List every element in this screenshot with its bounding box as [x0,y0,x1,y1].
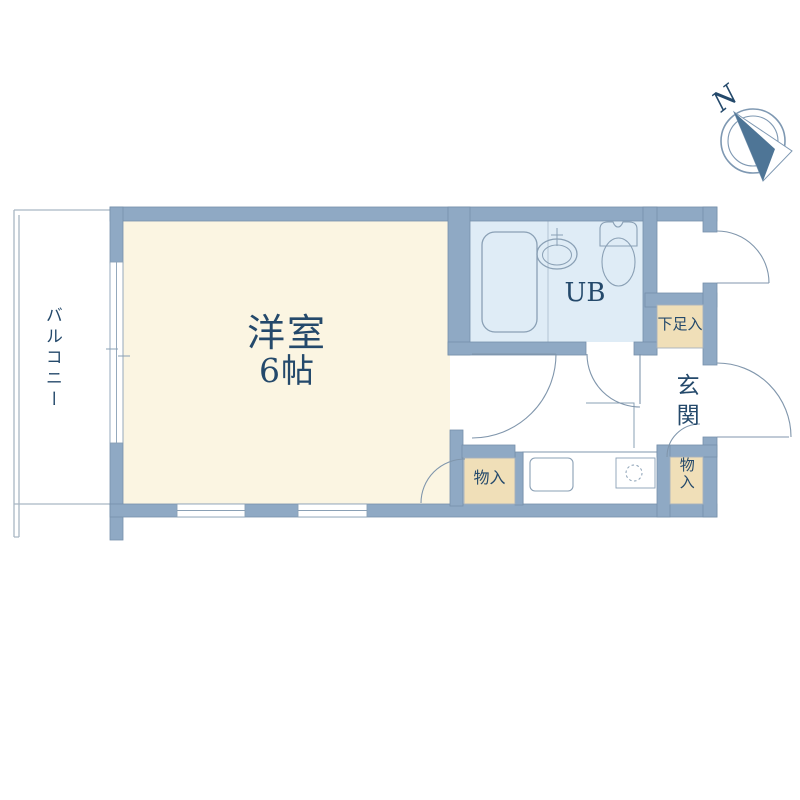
wall-segment [448,342,586,355]
wall-segment [110,207,717,221]
label-balcony: バルコニー [42,306,60,411]
floorplan-page: 洋室 6帖 バルコニー UB 下足入 玄関 物入 物入 N [0,0,800,800]
label-shoe-cabinet: 下足入 [652,317,708,333]
label-entrance: 玄関 [673,373,697,433]
label-storage-right: 物入 [678,457,694,491]
label-storage-left: 物入 [462,470,517,487]
bathroom-door-arc [587,354,640,407]
utility-closet-door-arc [717,231,769,283]
kitchen-area [523,452,658,505]
wall-segment [634,342,657,355]
balcony-outline [14,210,110,537]
wall-segment [657,445,670,517]
wall-segment [110,207,123,263]
main-room-name: 洋室 [187,314,387,354]
main-room-door-arc [472,354,556,438]
label-unit-bath: UB [557,280,613,307]
entrance-door-arc [717,363,791,437]
south-window-2 [298,504,367,517]
wall-segment [462,445,515,458]
compass-icon [721,109,792,181]
wall-segment [110,443,123,540]
wall-segment [448,207,470,355]
main-room-size: 6帖 [187,354,387,389]
south-window-1 [177,504,245,517]
label-main-room: 洋室 6帖 [187,314,387,389]
wall-segment [450,430,463,506]
entrance-step-line [586,403,634,448]
wall-segment [703,207,717,232]
wall-segment [643,207,657,355]
kitchen-counter [523,452,658,505]
